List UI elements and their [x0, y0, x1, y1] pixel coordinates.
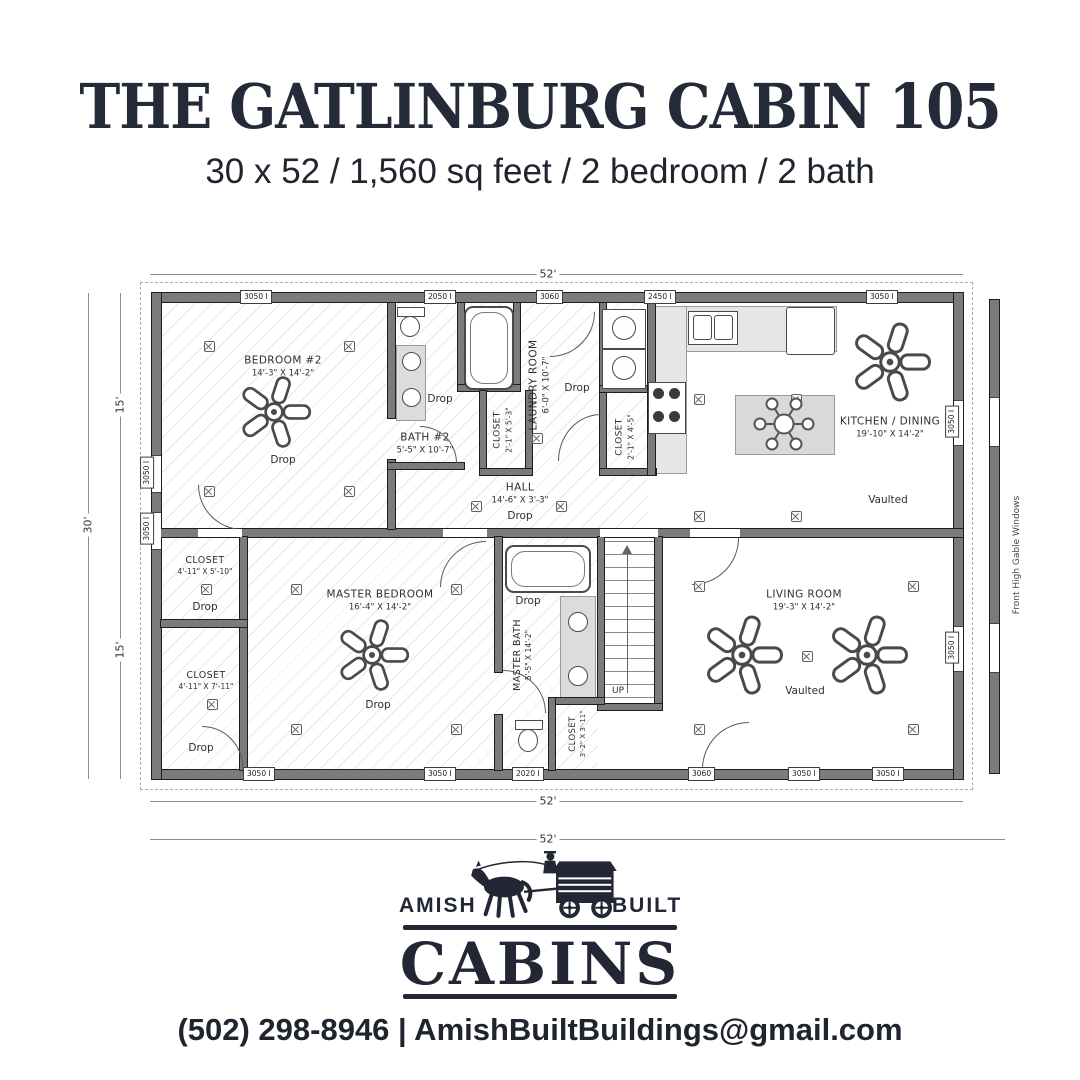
window-label: 3060	[536, 290, 563, 304]
light-symbol	[204, 486, 215, 497]
kitchen-sink-basin	[693, 315, 712, 340]
ceiling-fan-icon	[825, 613, 909, 697]
stairs-arrow-line	[627, 553, 628, 693]
wall	[480, 469, 532, 475]
light-symbol	[201, 584, 212, 595]
window-label: 3050 I	[872, 767, 904, 781]
light-symbol	[451, 584, 462, 595]
sink-basin	[568, 666, 588, 686]
doorway-gap	[600, 529, 658, 537]
dim-line	[150, 839, 1005, 840]
contact-info: (502) 298-8946 | AmishBuiltBuildings@gma…	[0, 1012, 1080, 1048]
sink-basin	[402, 352, 421, 371]
stove-burner	[669, 411, 680, 422]
room-label-kitchen: KITCHEN / DINING 19'-10" X 14'-2"	[840, 416, 940, 441]
window-label: 3050 I	[243, 767, 275, 781]
wall	[655, 537, 662, 709]
wall	[549, 698, 555, 770]
wall	[480, 391, 486, 475]
page-title: THE GATLINBURG CABIN 105	[0, 70, 1080, 143]
window-label: 3050 I	[866, 290, 898, 304]
refrigerator	[786, 307, 835, 355]
dim-label-bottom-outer: 52'	[536, 833, 559, 846]
light-symbol	[908, 724, 919, 735]
logo-cabins-text: CABINS	[0, 930, 1080, 998]
window-label: 3050 I	[240, 290, 272, 304]
stairs-arrow-head	[622, 545, 632, 554]
sink-basin	[568, 612, 588, 632]
dim-label-left-lower: 15'	[114, 638, 127, 661]
note-master-bath: Drop	[515, 595, 540, 607]
dryer-door	[612, 356, 636, 380]
gable-window-gap	[990, 623, 999, 673]
light-symbol	[451, 724, 462, 735]
light-symbol	[694, 724, 705, 735]
ceiling-fan-icon	[236, 374, 312, 450]
ceiling-fan-icon	[334, 617, 410, 693]
window-label: 3050 I	[945, 406, 959, 438]
room-label-master-bath: MASTER BATH 5'-5" X 14'-2"	[512, 619, 534, 691]
wall	[598, 537, 604, 704]
stairs-up-label: UP	[610, 686, 626, 696]
light-symbol	[471, 501, 482, 512]
window-label: 2050 I	[424, 290, 456, 304]
wall	[388, 303, 395, 418]
room-label-closet-bath: CLOSET 2'-1" X 5'-3"	[492, 407, 513, 452]
window-label: 3050 I	[945, 632, 959, 664]
bathtub	[464, 306, 514, 390]
doorway-gap	[198, 529, 242, 537]
gable-wall	[990, 300, 999, 773]
wall	[152, 529, 963, 537]
light-symbol	[204, 341, 215, 352]
page-subtitle: 30 x 52 / 1,560 sq feet / 2 bedroom / 2 …	[0, 152, 1080, 192]
note-closet-master1: Drop	[192, 601, 217, 613]
room-label-living: LIVING ROOM 19'-3" X 14'-2"	[766, 589, 842, 614]
gable-windows-note: Front High Gable Windows	[1012, 495, 1022, 615]
window-label: 3050 I	[140, 513, 154, 545]
light-symbol	[908, 581, 919, 592]
note-hall: Drop	[507, 510, 532, 522]
window-label: 3050 I	[788, 767, 820, 781]
light-symbol	[207, 699, 218, 710]
window-label: 2450 I	[644, 290, 676, 304]
light-symbol	[791, 511, 802, 522]
room-label-master-bedroom: MASTER BEDROOM 16'-4" X 14'-2"	[327, 589, 434, 614]
ceiling-fan-icon	[700, 613, 784, 697]
note-closet-master2: Drop	[188, 742, 213, 754]
light-symbol	[694, 581, 705, 592]
ceiling-fan-icon	[848, 320, 932, 404]
room-label-closet-stairs: CLOSET 3'-2" X 3'-11"	[568, 711, 588, 758]
room-label-laundry: LAUNDRY ROOM 6'-0" X 10'-7"	[528, 340, 553, 431]
dim-label-top: 52'	[536, 268, 559, 281]
stove-burner	[653, 388, 664, 399]
doorway-gap	[443, 529, 487, 537]
dim-label-bottom-inner: 52'	[536, 795, 559, 808]
note-kitchen: Vaulted	[868, 494, 908, 506]
wall	[514, 303, 520, 389]
bathtub	[505, 545, 591, 593]
light-symbol	[694, 511, 705, 522]
flyer-page: THE GATLINBURG CABIN 105 30 x 52 / 1,560…	[0, 0, 1080, 1080]
wall	[549, 698, 604, 704]
room-label-closet-master1: CLOSET 4'-11" X 5'-10"	[178, 555, 233, 577]
wall	[388, 460, 395, 529]
toilet	[397, 307, 423, 337]
dining-table-icon	[752, 392, 816, 456]
dim-label-left-upper: 15'	[114, 393, 127, 416]
wall	[495, 715, 502, 770]
light-symbol	[291, 584, 302, 595]
logo-divider-bottom	[403, 994, 677, 999]
room-label-hall: HALL 14'-6" X 3'-3"	[492, 482, 549, 507]
room-label-closet-master2: CLOSET 4'-11" X 7'-11"	[179, 670, 234, 692]
stove-burner	[653, 411, 664, 422]
dim-label-left-total: 30'	[82, 513, 95, 536]
note-living: Vaulted	[785, 685, 825, 697]
kitchen-sink-basin	[714, 315, 733, 340]
wall	[598, 704, 662, 710]
gable-window-gap	[990, 397, 999, 447]
wall	[161, 620, 247, 627]
note-bath2: Drop	[427, 393, 452, 405]
doorway-gap	[690, 529, 740, 537]
room-label-bath2: BATH #2 5'-5" X 10'-7"	[397, 432, 454, 457]
washer-door	[612, 316, 636, 340]
window-label: 2020 I	[512, 767, 544, 781]
window-label: 3050 I	[140, 457, 154, 489]
room-label-closet-kitchen: CLOSET 2'-1" X 4'-5"	[614, 414, 635, 459]
window-label: 3060	[688, 767, 715, 781]
stove-burner	[669, 388, 680, 399]
note-master-bedroom: Drop	[365, 699, 390, 711]
staircase	[602, 541, 656, 701]
light-symbol	[802, 651, 813, 662]
toilet	[515, 720, 541, 752]
room-label-bedroom2: BEDROOM #2 14'-3" X 14'-2"	[244, 355, 322, 380]
light-symbol	[291, 724, 302, 735]
note-laundry: Drop	[564, 382, 589, 394]
logo-amish-text: AMISH	[399, 894, 477, 918]
sink-basin	[402, 388, 421, 407]
window-label: 3050 I	[424, 767, 456, 781]
wall	[240, 537, 247, 770]
horse-and-wagon-icon	[468, 846, 628, 928]
wall	[388, 463, 464, 469]
light-symbol	[344, 341, 355, 352]
light-symbol	[556, 501, 567, 512]
wall	[495, 537, 502, 672]
light-symbol	[532, 433, 543, 444]
light-symbol	[694, 394, 705, 405]
note-bedroom2: Drop	[270, 454, 295, 466]
light-symbol	[344, 486, 355, 497]
